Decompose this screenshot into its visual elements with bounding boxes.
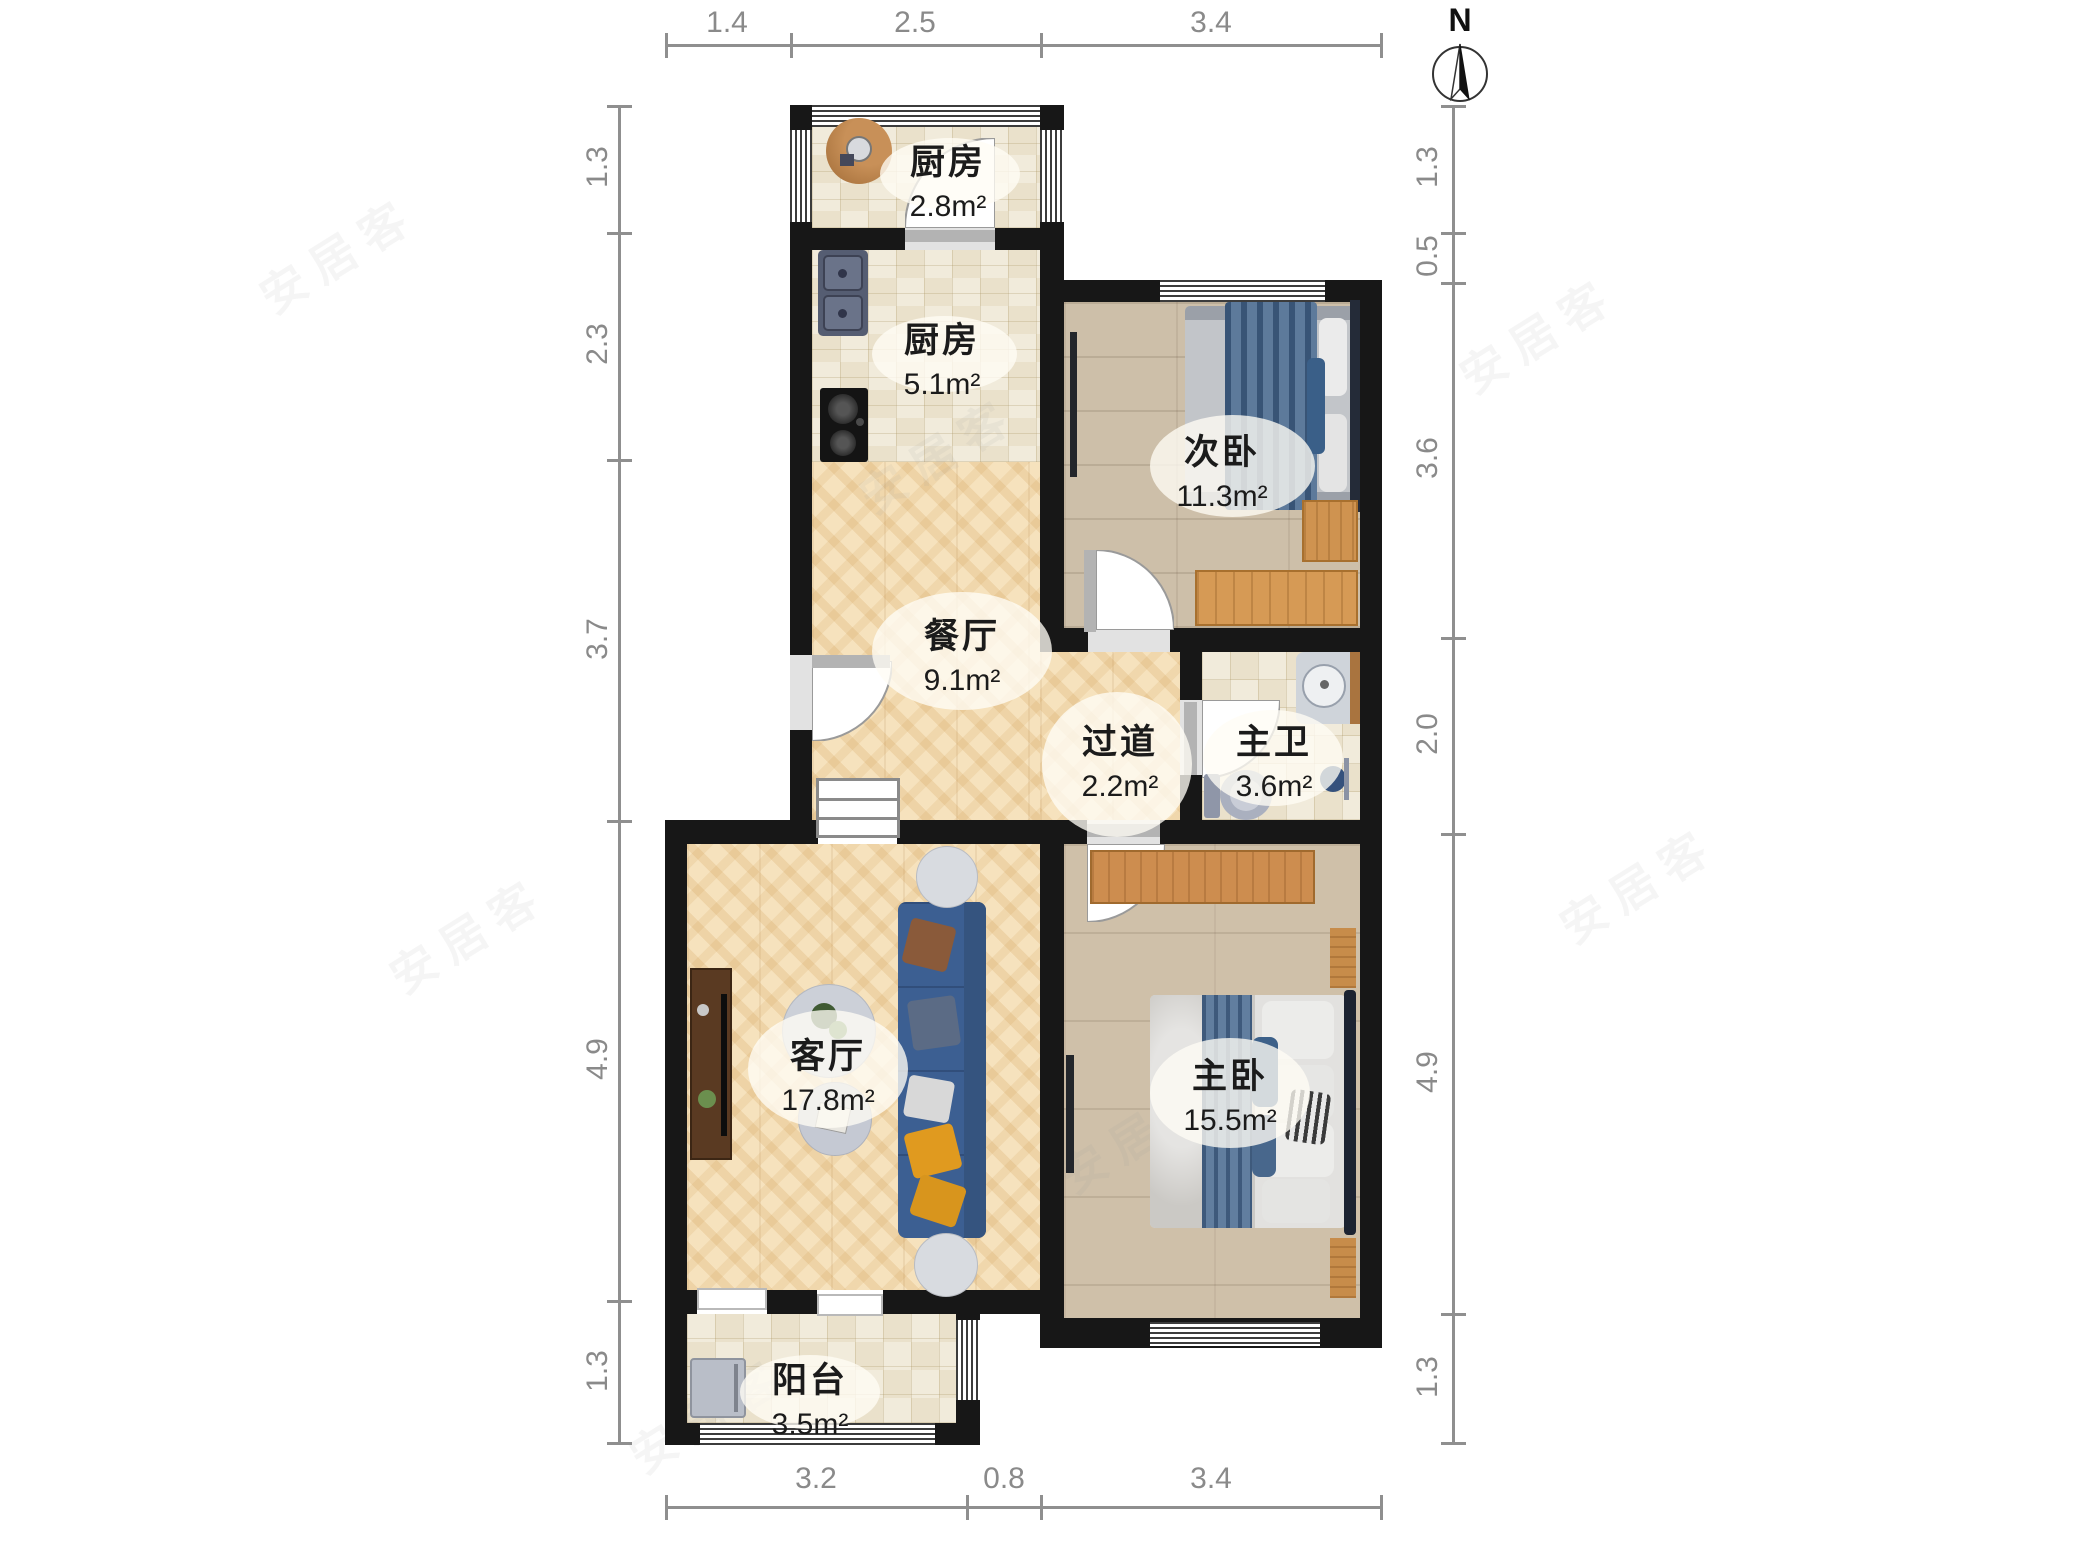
room-area: 17.8m² <box>748 1084 908 1118</box>
wall <box>883 1290 1064 1314</box>
wall <box>790 730 812 820</box>
dim-line-right <box>1452 105 1455 1445</box>
window-second-bedroom <box>1160 280 1325 302</box>
wall <box>665 1423 700 1445</box>
wall <box>1180 652 1202 700</box>
dim-top-2: 2.5 <box>875 6 955 40</box>
sofa-backrest <box>964 902 986 1238</box>
dim-left-4: 4.9 <box>581 1019 615 1099</box>
room-label-kitchen-balcony: 厨房 2.8m² <box>868 134 1028 224</box>
wall <box>897 820 1087 844</box>
window-master-bedroom <box>1150 1322 1320 1346</box>
bench <box>1302 500 1358 562</box>
wall <box>665 844 687 1290</box>
dim-tick <box>1441 637 1466 640</box>
room-name: 次卧 <box>1142 424 1302 475</box>
pillow-yellow <box>903 1123 963 1180</box>
dim-left-5: 1.3 <box>581 1331 615 1411</box>
wall-strip <box>1066 1055 1074 1173</box>
window-kitchen-balcony-right <box>1040 130 1064 222</box>
room-area: 2.2m² <box>1040 770 1200 804</box>
room-label-bathroom: 主卫 3.6m² <box>1194 714 1354 804</box>
dim-left-3: 3.7 <box>581 599 615 679</box>
room-area: 3.5m² <box>730 1408 890 1442</box>
dim-tick <box>607 105 632 108</box>
room-label-second-bedroom: 次卧 11.3m² <box>1142 424 1302 514</box>
entry-cabinet <box>816 778 900 838</box>
dim-tick <box>1441 1313 1466 1316</box>
cabinet-shelf <box>819 798 897 801</box>
sink-basin <box>823 295 863 331</box>
drain <box>838 269 847 278</box>
room-area: 15.5m² <box>1150 1104 1310 1138</box>
wardrobe <box>1090 850 1315 904</box>
knob <box>856 418 864 426</box>
entry-door-sill <box>790 655 812 730</box>
room-area: 3.6m² <box>1194 770 1354 804</box>
wall <box>1170 628 1382 652</box>
room-name: 客厅 <box>748 1028 908 1079</box>
cabinet-shelf <box>819 817 897 820</box>
dim-tick <box>607 1442 632 1445</box>
dim-line-bottom <box>665 1506 1382 1509</box>
room-name: 阳台 <box>730 1352 890 1403</box>
wall <box>1040 844 1064 1318</box>
bedside-rug <box>1330 1238 1356 1298</box>
dim-tick <box>665 1495 668 1520</box>
room-name: 厨房 <box>862 312 1022 363</box>
wall <box>665 1290 697 1314</box>
balcony-door-panel <box>817 1294 883 1316</box>
wall <box>1160 820 1382 844</box>
dim-tick <box>1380 1495 1383 1520</box>
dim-tick <box>1040 33 1043 58</box>
pillow <box>907 995 961 1051</box>
dim-line-top <box>665 44 1382 47</box>
wall <box>767 1290 817 1314</box>
dim-bottom-3: 3.4 <box>1171 1462 1251 1496</box>
wall <box>790 250 812 655</box>
stove <box>820 388 868 462</box>
room-label-kitchen: 厨房 5.1m² <box>862 312 1022 402</box>
room-name: 厨房 <box>868 134 1028 185</box>
room-name: 餐厅 <box>882 608 1042 659</box>
burner <box>830 430 856 456</box>
watermark: 安居客 <box>376 859 559 1007</box>
pillow <box>1262 1179 1330 1223</box>
wall <box>790 228 905 250</box>
dim-tick <box>665 33 668 58</box>
dim-left-2: 2.3 <box>581 304 615 384</box>
dim-tick <box>966 1495 969 1520</box>
watermark: 安居客 <box>246 179 429 327</box>
dim-bottom-1: 3.2 <box>776 1462 856 1496</box>
north-arrow-icon <box>1418 2 1502 112</box>
dim-tick <box>607 820 632 823</box>
wall <box>935 1423 980 1445</box>
burner <box>828 394 858 424</box>
dim-right-1: 1.3 <box>1411 127 1445 207</box>
tv-cabinet <box>690 968 732 1160</box>
faucet <box>1320 680 1329 689</box>
room-area: 11.3m² <box>1142 480 1302 514</box>
dim-tick <box>607 459 632 462</box>
wall <box>665 820 818 844</box>
dim-tick <box>1441 1442 1466 1445</box>
plant <box>698 1090 716 1108</box>
kitchen-sink <box>818 250 868 336</box>
dim-tick <box>1040 1495 1043 1520</box>
dim-left-1: 1.3 <box>581 127 615 207</box>
pillow <box>901 917 957 973</box>
dim-right-6: 1.3 <box>1411 1337 1445 1417</box>
dim-tick <box>607 232 632 235</box>
drain <box>838 309 847 318</box>
desk <box>1195 570 1358 626</box>
dim-top-1: 1.4 <box>687 6 767 40</box>
room-label-living: 客厅 17.8m² <box>748 1028 908 1118</box>
wall <box>1360 280 1382 1348</box>
room-area: 5.1m² <box>862 368 1022 402</box>
sofa <box>898 902 986 1238</box>
door-panel <box>905 230 995 242</box>
pillow <box>903 1074 956 1123</box>
room-area: 9.1m² <box>882 664 1042 698</box>
door-sill <box>1088 628 1170 652</box>
door-arc <box>1096 550 1174 630</box>
wall <box>1040 302 1064 628</box>
dim-bottom-2: 0.8 <box>964 1462 1044 1496</box>
sink-basin <box>823 255 863 291</box>
tv <box>721 994 727 1136</box>
room-name: 主卫 <box>1194 714 1354 765</box>
room-name: 主卧 <box>1150 1048 1310 1099</box>
pillow-yellow <box>909 1174 968 1229</box>
headboard <box>1344 990 1356 1235</box>
watermark: 安居客 <box>1546 809 1729 957</box>
dim-right-5: 4.9 <box>1411 1032 1445 1112</box>
watermark: 安居客 <box>1446 259 1629 407</box>
dim-tick <box>1441 833 1466 836</box>
room-label-hallway: 过道 2.2m² <box>1040 714 1200 804</box>
floorplan-canvas: 安居客 安居客 安居客 安居客 安居客 安居客 安居客 <box>0 0 2080 1560</box>
door-panel <box>1084 550 1096 632</box>
dim-tick <box>607 1300 632 1303</box>
dim-tick <box>790 33 793 58</box>
compass: N <box>1418 2 1502 112</box>
room-label-dining: 餐厅 9.1m² <box>882 608 1042 698</box>
side-table <box>916 846 978 908</box>
dim-right-4: 2.0 <box>1411 694 1445 774</box>
room-label-balcony: 阳台 3.5m² <box>730 1352 890 1442</box>
dim-tick <box>1380 33 1383 58</box>
window-kitchen-balcony-left <box>790 130 812 222</box>
dim-line-left <box>618 105 621 1445</box>
dim-right-2: 0.5 <box>1411 216 1445 296</box>
room-name: 过道 <box>1040 714 1200 765</box>
window-balcony-right <box>956 1320 980 1400</box>
wardrobe-strip <box>1070 332 1077 477</box>
dim-right-3: 3.6 <box>1411 418 1445 498</box>
cup <box>840 154 854 166</box>
room-label-master-bedroom: 主卧 15.5m² <box>1150 1048 1310 1138</box>
headboard <box>1350 300 1360 512</box>
balcony-door-panel <box>697 1288 767 1310</box>
dim-top-3: 3.4 <box>1171 6 1251 40</box>
side-table <box>914 1233 978 1297</box>
pillow-blue <box>1307 358 1325 454</box>
decor <box>697 1004 709 1016</box>
room-area: 2.8m² <box>868 190 1028 224</box>
bedside-rug <box>1330 928 1356 988</box>
